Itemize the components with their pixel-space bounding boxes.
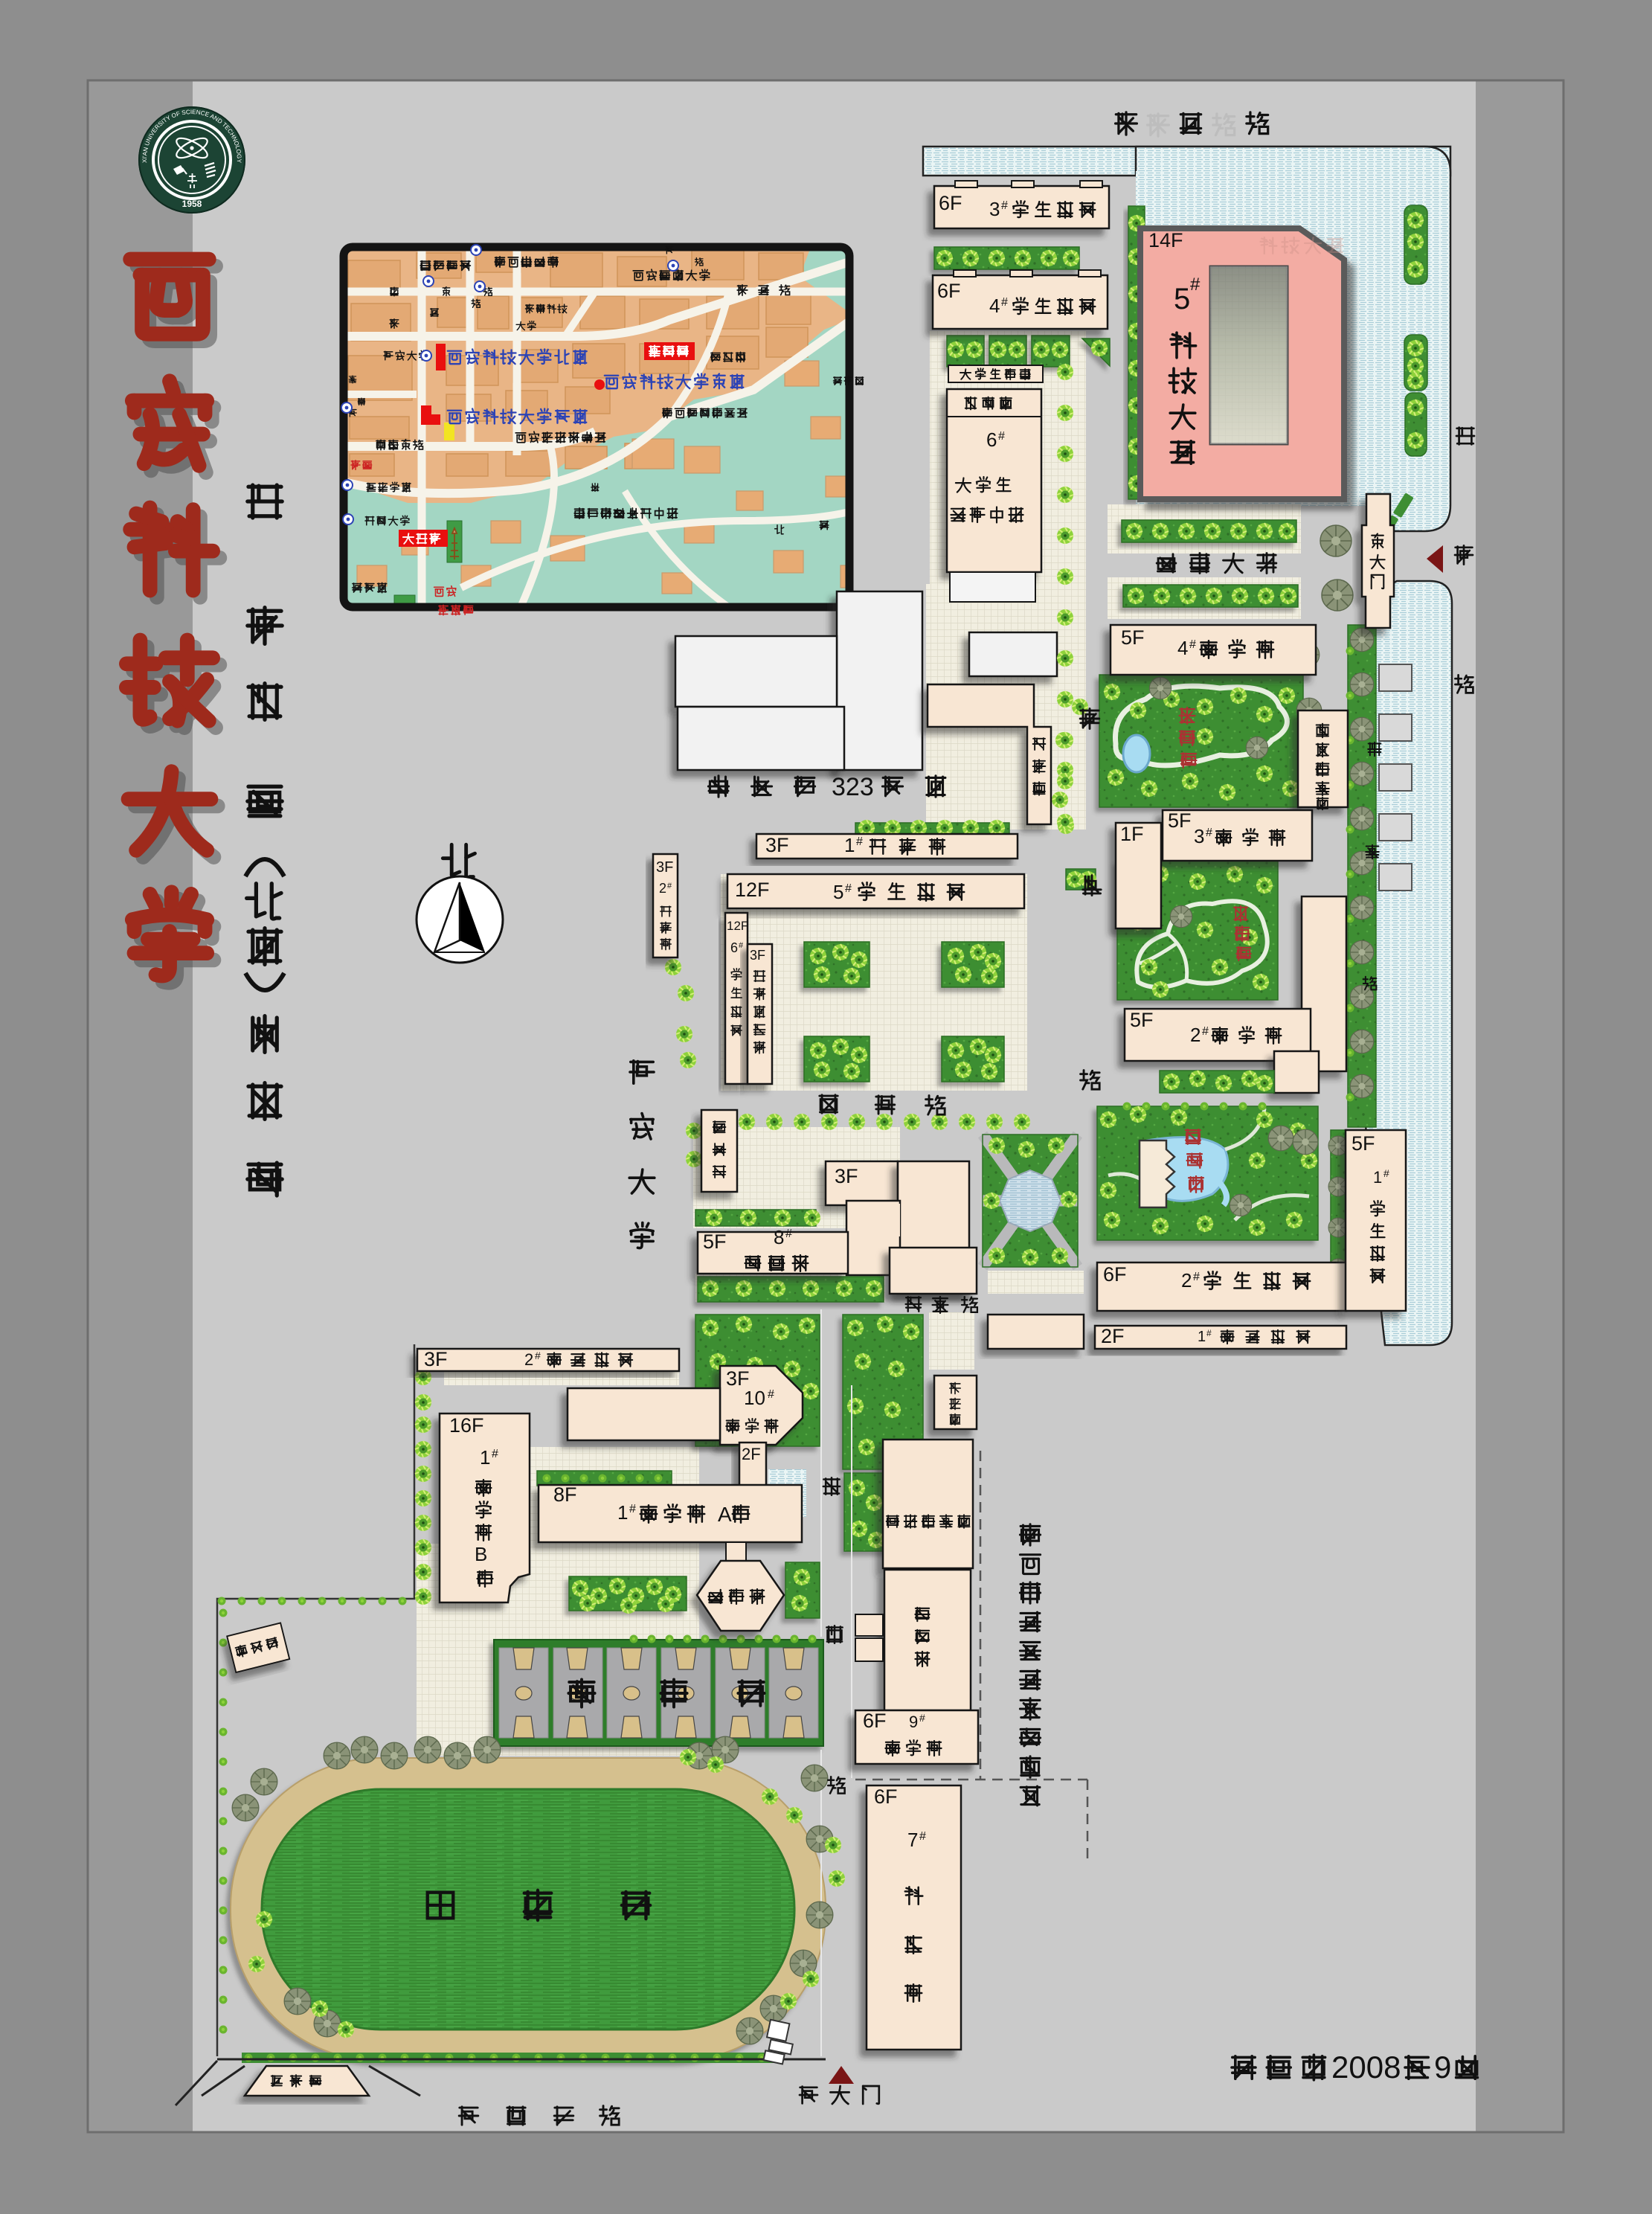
svg-text:9: 9 [909, 1713, 918, 1731]
svg-text:#: # [919, 1712, 925, 1724]
svg-text:2: 2 [659, 881, 666, 896]
svg-text:#: # [1206, 827, 1212, 839]
svg-text:#: # [1202, 1025, 1209, 1038]
svg-text:4: 4 [989, 295, 1000, 317]
svg-text:#: # [845, 882, 852, 895]
svg-text:#: # [739, 941, 744, 950]
svg-text:#: # [1206, 1328, 1212, 1338]
svg-text:6F: 6F [863, 1710, 887, 1732]
svg-text:1: 1 [480, 1446, 490, 1469]
svg-text:#: # [919, 1830, 926, 1843]
svg-text:2: 2 [1190, 1024, 1201, 1046]
svg-text:5: 5 [833, 881, 843, 903]
svg-text:5F: 5F [703, 1230, 727, 1253]
svg-text:16F: 16F [449, 1414, 484, 1437]
svg-text:3F: 3F [750, 948, 765, 963]
svg-text:3F: 3F [835, 1165, 858, 1187]
svg-text:3: 3 [989, 198, 1000, 220]
svg-text:A: A [718, 1503, 732, 1526]
svg-text:6F: 6F [937, 280, 961, 302]
svg-text:2: 2 [524, 1350, 533, 1369]
svg-text:#: # [998, 430, 1005, 443]
svg-text:#: # [856, 835, 863, 848]
svg-text:6: 6 [730, 940, 738, 955]
svg-text:5F: 5F [1168, 809, 1192, 832]
svg-text:3: 3 [1194, 825, 1204, 847]
svg-text:#: # [1189, 638, 1196, 651]
svg-text:323: 323 [832, 773, 874, 801]
svg-text:5F: 5F [1130, 1009, 1154, 1031]
svg-text:12F: 12F [735, 879, 770, 901]
svg-text:3F: 3F [424, 1348, 448, 1370]
svg-text:3F: 3F [656, 859, 673, 876]
svg-text:10: 10 [744, 1387, 765, 1409]
svg-text:#: # [785, 1228, 792, 1240]
svg-text:#: # [535, 1350, 541, 1361]
svg-text:4: 4 [1177, 637, 1188, 659]
svg-text:6: 6 [986, 429, 997, 451]
svg-text:9: 9 [1434, 2050, 1451, 2085]
svg-text:#: # [1190, 275, 1201, 295]
svg-text:12F: 12F [727, 919, 748, 933]
svg-text:#: # [768, 1388, 774, 1401]
svg-text:1: 1 [617, 1501, 628, 1524]
svg-text:2F: 2F [1101, 1325, 1125, 1347]
svg-text:#: # [1383, 1167, 1389, 1179]
svg-text:#: # [492, 1448, 498, 1460]
svg-text:#: # [1193, 1271, 1200, 1283]
svg-text:14F: 14F [1148, 229, 1183, 251]
svg-text:#: # [1001, 199, 1008, 212]
svg-text:7: 7 [907, 1829, 918, 1851]
svg-text:6F: 6F [874, 1785, 898, 1808]
svg-text:3F: 3F [765, 834, 789, 856]
svg-text:2008: 2008 [1331, 2050, 1401, 2085]
svg-text:5F: 5F [1352, 1132, 1375, 1155]
svg-text:5F: 5F [1121, 626, 1145, 649]
svg-text:2F: 2F [742, 1445, 761, 1463]
svg-text:5: 5 [1174, 283, 1190, 315]
svg-text:1: 1 [1373, 1168, 1382, 1187]
svg-text:6F: 6F [1103, 1263, 1127, 1286]
svg-text:8: 8 [774, 1226, 784, 1248]
svg-text:2: 2 [1181, 1269, 1192, 1291]
svg-text:1: 1 [1198, 1329, 1206, 1345]
svg-text:8F: 8F [553, 1483, 577, 1506]
svg-text:1: 1 [844, 834, 855, 856]
svg-text:1F: 1F [1120, 823, 1144, 845]
svg-text:6F: 6F [939, 192, 962, 214]
svg-text:#: # [1001, 296, 1008, 309]
svg-text:1958: 1958 [182, 199, 202, 209]
svg-text:#: # [667, 882, 672, 891]
svg-text:#: # [629, 1503, 636, 1515]
svg-text:B: B [475, 1543, 487, 1565]
